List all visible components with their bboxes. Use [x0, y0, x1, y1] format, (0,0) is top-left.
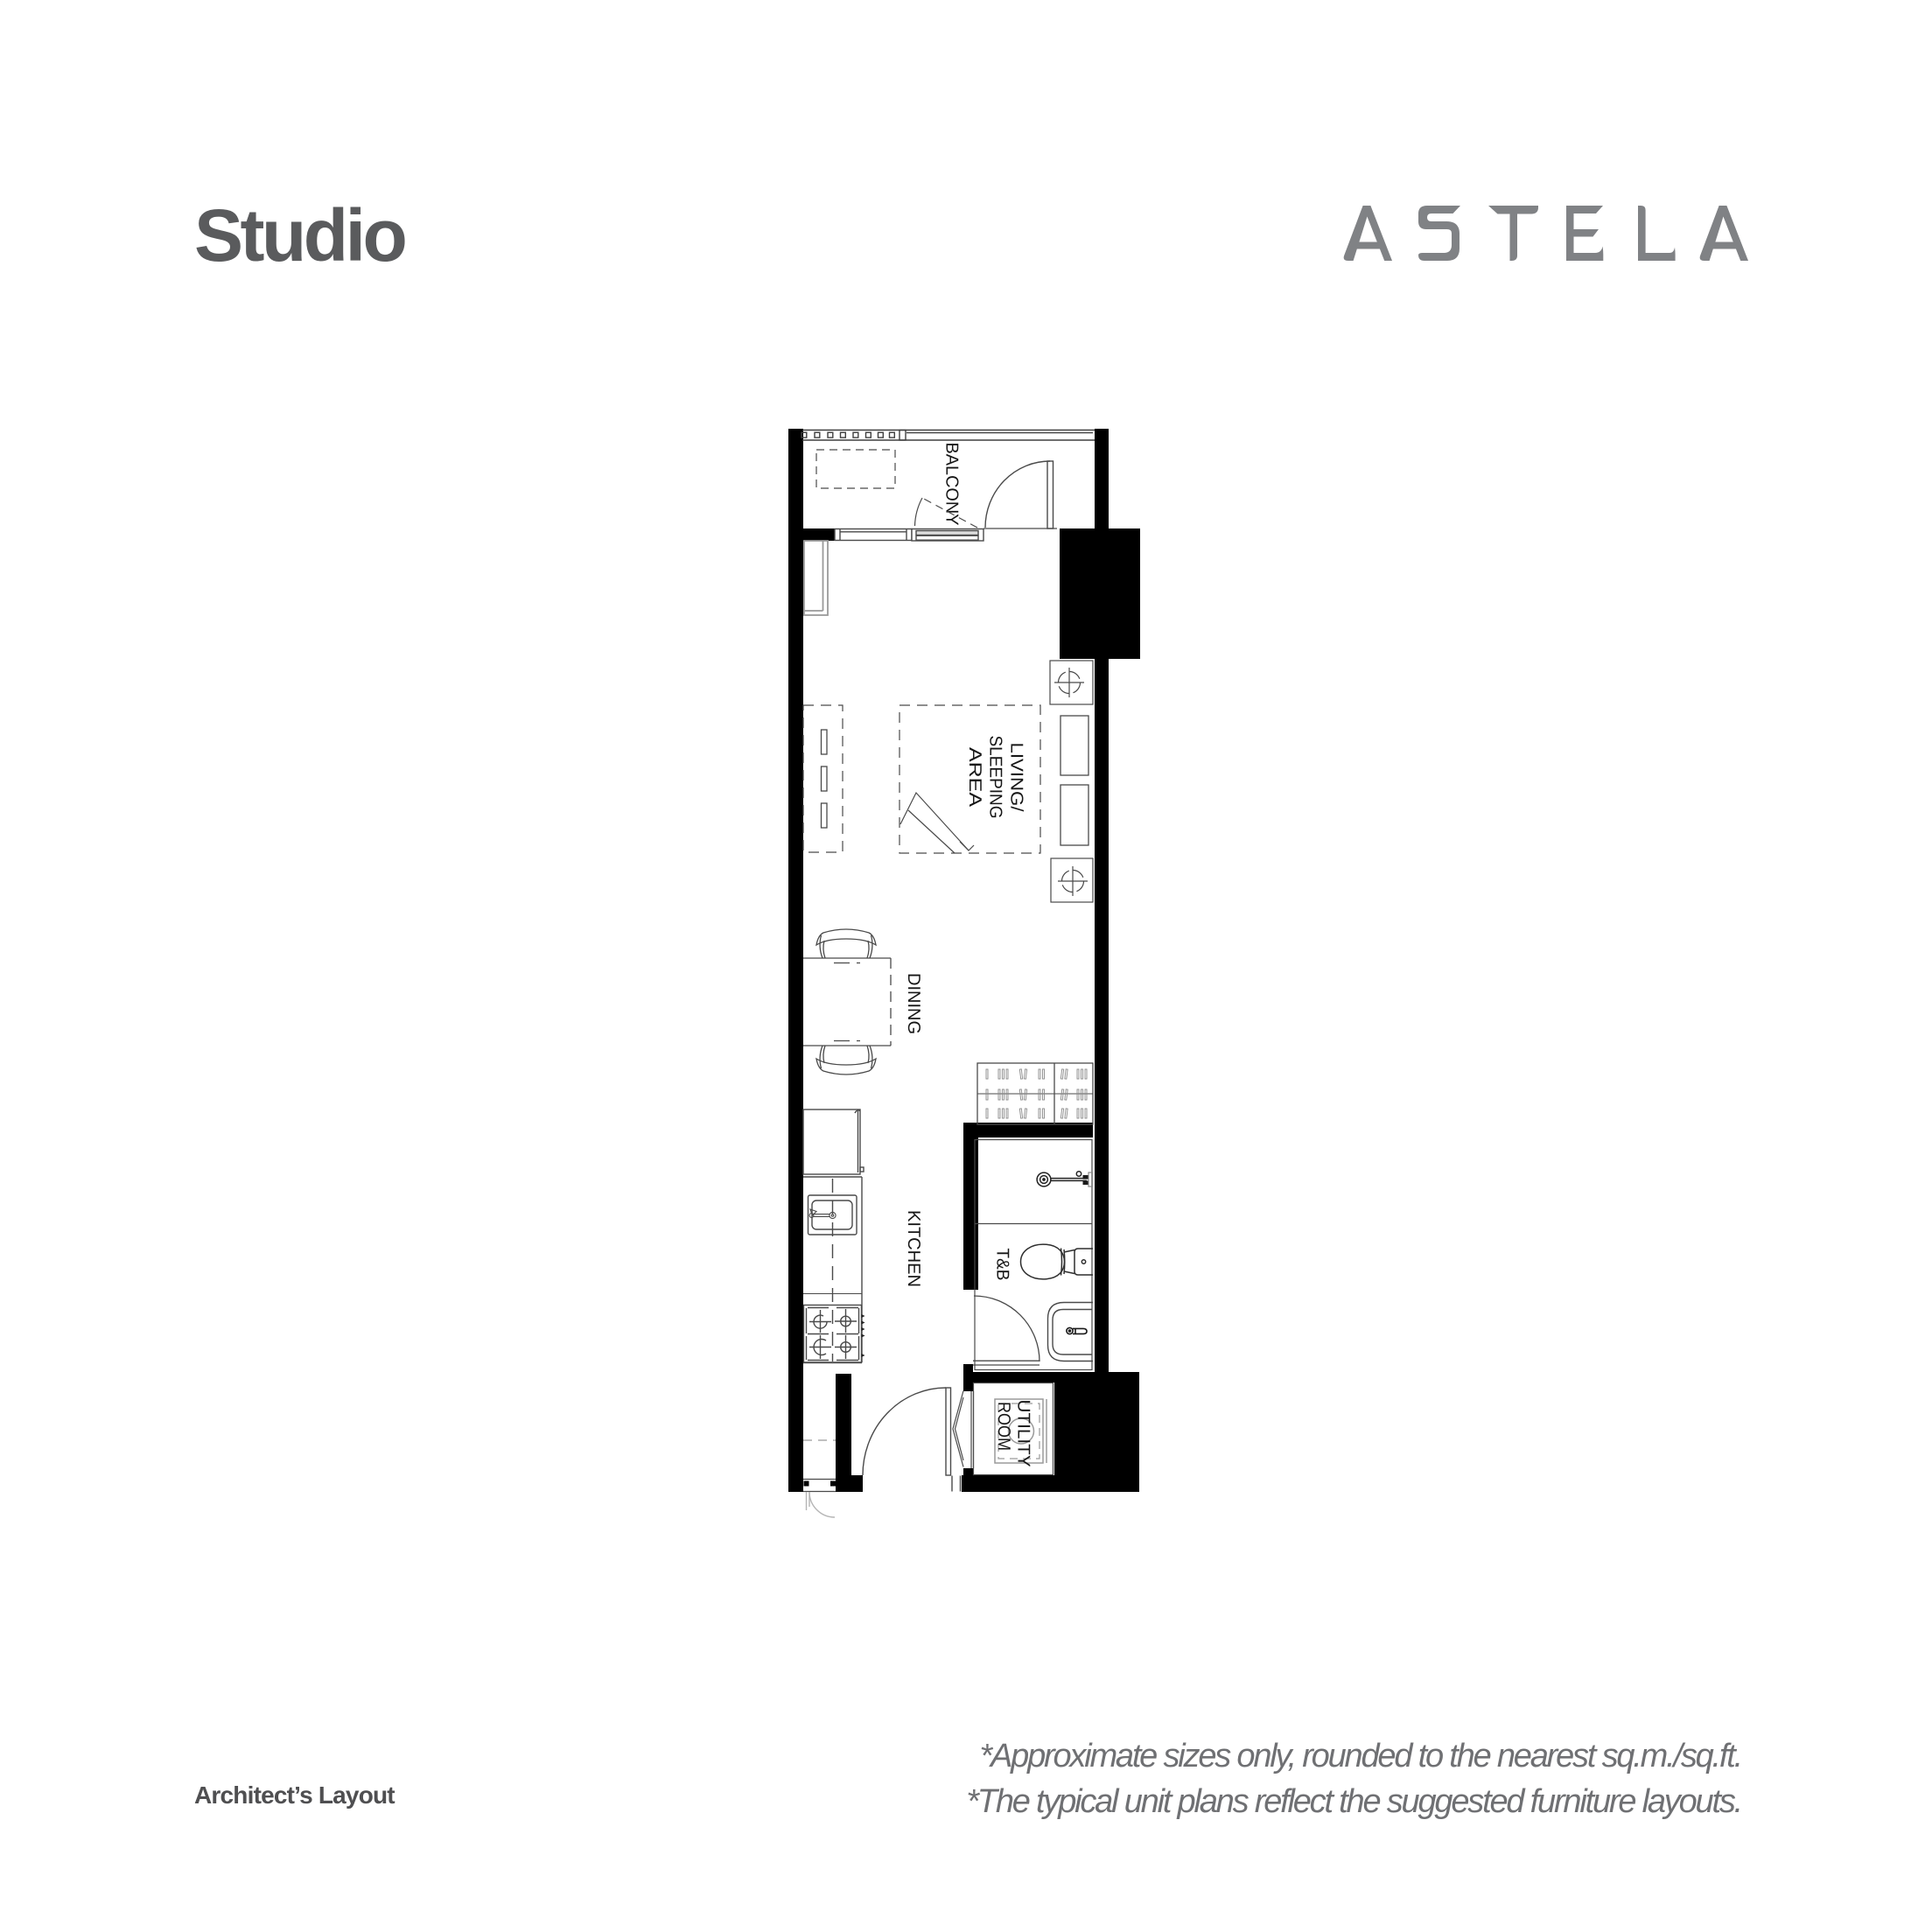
svg-text:LIVING/: LIVING/: [1007, 743, 1026, 812]
svg-text:DINING: DINING: [904, 973, 923, 1034]
svg-text:KITCHEN: KITCHEN: [904, 1210, 923, 1287]
svg-text:AREA: AREA: [965, 747, 984, 808]
svg-text:T&B: T&B: [993, 1249, 1012, 1281]
svg-text:ROOM: ROOM: [994, 1402, 1013, 1451]
svg-text:BALCONY: BALCONY: [942, 443, 962, 526]
svg-text:SLEEPING: SLEEPING: [986, 736, 1005, 819]
svg-text:UTILITY: UTILITY: [1014, 1400, 1033, 1467]
